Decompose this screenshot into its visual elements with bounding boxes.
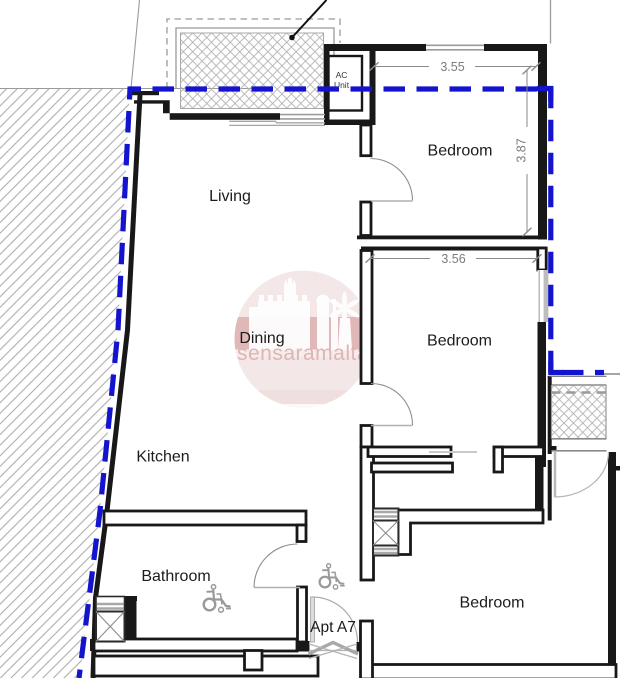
svg-text:3.87: 3.87 [515,138,529,162]
svg-text:Dining: Dining [239,330,284,347]
svg-text:Bedroom: Bedroom [427,333,492,350]
svg-text:Unit: Unit [334,80,350,90]
svg-text:3.55: 3.55 [440,60,464,74]
svg-text:AC: AC [336,70,348,80]
svg-text:Living: Living [209,188,251,205]
svg-text:Bedroom: Bedroom [460,595,525,612]
svg-text:Bedroom: Bedroom [428,143,493,160]
svg-text:Bathroom: Bathroom [141,568,210,585]
svg-text:Apt A7: Apt A7 [310,619,356,636]
svg-text:3.56: 3.56 [441,252,465,266]
svg-text:Kitchen: Kitchen [136,449,189,466]
